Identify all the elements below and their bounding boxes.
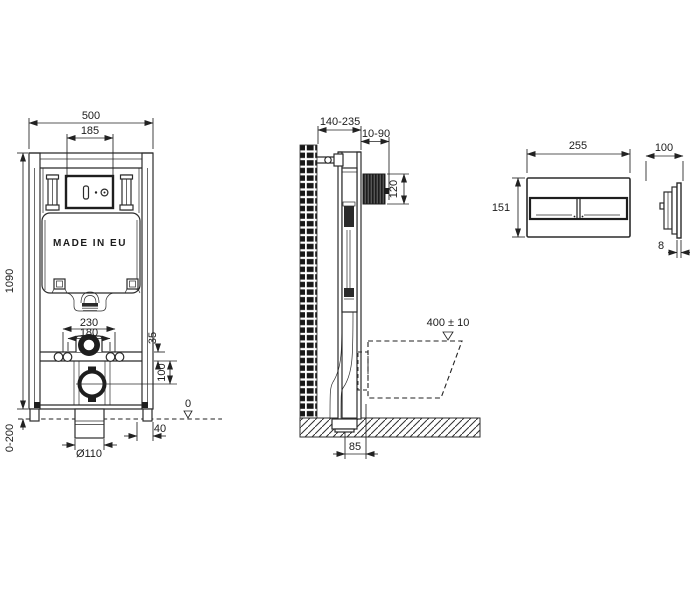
side-cistern bbox=[330, 168, 357, 419]
dim-plate-thickness: 8 bbox=[658, 240, 664, 252]
dim-shaft-height: 120 bbox=[388, 180, 400, 198]
bolt-hole bbox=[54, 353, 63, 362]
dim-wall-gap: 10-90 bbox=[362, 128, 390, 140]
bracket-clamp bbox=[334, 154, 343, 166]
flush-plate-front-view: 255 151 bbox=[492, 140, 630, 237]
bolt-hole bbox=[63, 353, 72, 362]
dim-foot-adjustment: 0-200 bbox=[4, 424, 16, 452]
dim-overall-width: 500 bbox=[82, 110, 100, 122]
dim-plate-depth: 100 bbox=[655, 142, 673, 154]
plate-panel-side bbox=[677, 183, 681, 238]
dim-offset-top: 35 bbox=[147, 332, 159, 344]
foot-lock-right bbox=[142, 402, 148, 408]
dim-foot-depth: 40 bbox=[154, 423, 166, 435]
side-view: 140-235 10-90 120 400 ± 10 85 bbox=[300, 116, 480, 459]
flush-valve-seat bbox=[344, 288, 354, 297]
button-band bbox=[530, 198, 627, 219]
front-view: MADE IN EU bbox=[4, 110, 222, 460]
made-in-eu-label: MADE IN EU bbox=[53, 238, 127, 249]
dim-overall-height: 1090 bbox=[4, 269, 16, 293]
frame-rail-back bbox=[338, 152, 342, 419]
technical-drawing-installation-frame: MADE IN EU bbox=[0, 0, 694, 600]
dim-window-width: 185 bbox=[81, 125, 99, 137]
masonry-wall bbox=[300, 145, 317, 419]
bracket-bolt bbox=[325, 157, 331, 163]
floor-section bbox=[300, 418, 480, 437]
drain-pipe bbox=[75, 409, 104, 438]
fill-valve bbox=[344, 206, 354, 227]
bolt-hole bbox=[106, 353, 115, 362]
plate-flange bbox=[672, 187, 677, 234]
wc-bowl-dashed bbox=[368, 341, 462, 398]
inspection-window bbox=[66, 176, 113, 208]
dim-flush-centers: 180 bbox=[80, 327, 98, 339]
elbow-coupling bbox=[82, 303, 98, 307]
dim-floor-datum: 0 bbox=[185, 398, 191, 410]
foot-lock-left bbox=[34, 402, 40, 408]
foot-left bbox=[30, 409, 39, 421]
dim-plate-width: 255 bbox=[569, 140, 587, 152]
inspection-shaft bbox=[363, 174, 385, 204]
datum-triangle bbox=[184, 411, 192, 418]
flush-elbow-dome bbox=[81, 292, 99, 303]
foot-right bbox=[143, 409, 152, 421]
frame-rail-front bbox=[357, 152, 361, 419]
bolt-hole bbox=[115, 353, 124, 362]
side-foot bbox=[332, 419, 357, 429]
dim-frame-depth: 140-235 bbox=[320, 116, 360, 128]
cistern-front: MADE IN EU bbox=[42, 175, 140, 311]
dim-bowl-height: 400 ± 10 bbox=[427, 317, 470, 329]
bowl-outline bbox=[358, 341, 462, 398]
dim-base-depth: 85 bbox=[349, 441, 361, 453]
dot-mark bbox=[95, 191, 97, 193]
bowl-datum-triangle bbox=[443, 332, 453, 340]
dim-offset-drain: 100 bbox=[156, 363, 168, 381]
dim-drain-diameter: Ø110 bbox=[76, 448, 102, 460]
dim-plate-height: 151 bbox=[492, 202, 510, 214]
flush-plate-side-view: 100 8 bbox=[646, 142, 690, 258]
drawing-svg: MADE IN EU bbox=[0, 0, 694, 600]
